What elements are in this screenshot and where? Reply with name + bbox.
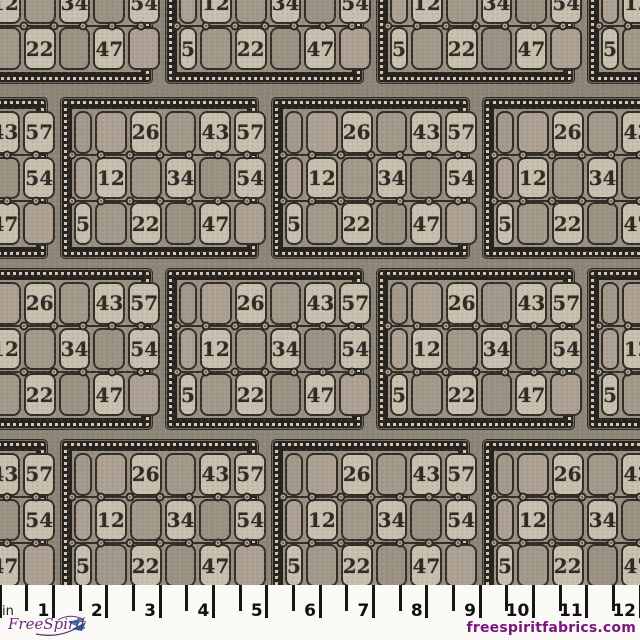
blank-cell	[0, 373, 21, 416]
number-cell: 5	[179, 27, 197, 70]
eyelet-icon	[107, 368, 116, 377]
number-cell: 57	[23, 111, 55, 154]
inch-number: 3	[130, 601, 156, 621]
blank-cell	[0, 499, 20, 542]
eyelet-icon	[68, 150, 77, 159]
blank-cell	[515, 328, 547, 371]
blank-cell	[496, 111, 514, 154]
blank-cell	[306, 111, 338, 154]
inch-number: 5	[237, 601, 263, 621]
eyelet-icon	[442, 368, 451, 377]
blank-cell	[235, 328, 267, 371]
number-cell: 57	[234, 453, 266, 496]
card-grid: 26435712345452247	[175, 278, 354, 420]
number-cell: 47	[515, 27, 547, 70]
eyelet-icon	[49, 321, 58, 330]
blank-cell	[552, 499, 584, 542]
divider-line	[496, 154, 640, 156]
lotto-card: 26435712345452247	[589, 0, 640, 82]
eyelet-icon	[490, 197, 499, 206]
blank-cell	[622, 282, 640, 325]
eyelet-icon	[424, 492, 433, 501]
eyelet-icon	[231, 368, 240, 377]
eyelet-icon	[213, 197, 222, 206]
number-cell: 54	[234, 157, 266, 200]
blank-cell	[128, 27, 160, 70]
number-cell: 57	[234, 111, 266, 154]
blank-cell	[285, 453, 303, 496]
eyelet-icon	[606, 539, 615, 548]
card-grid: 26435712345452247	[281, 107, 460, 249]
number-cell: 22	[235, 373, 267, 416]
eyelet-icon	[624, 368, 633, 377]
number-cell: 12	[95, 499, 127, 542]
eyelet-icon	[49, 22, 58, 31]
inch-tick	[105, 585, 108, 618]
number-cell: 47	[199, 202, 231, 245]
number-cell: 26	[130, 453, 162, 496]
eyelet-icon	[126, 197, 135, 206]
blank-cell	[199, 157, 231, 200]
eyelet-icon	[126, 492, 135, 501]
number-cell: 12	[0, 0, 21, 24]
eyelet-icon	[529, 321, 538, 330]
number-cell: 54	[339, 328, 371, 371]
number-cell: 5	[601, 27, 619, 70]
blank-cell	[411, 282, 443, 325]
blank-cell	[376, 453, 408, 496]
card-grid: 26435712345452247	[597, 278, 640, 420]
eyelet-icon	[68, 539, 77, 548]
eyelet-icon	[366, 150, 375, 159]
number-cell: 34	[587, 499, 619, 542]
eyelet-icon	[107, 321, 116, 330]
eyelet-icon	[20, 368, 29, 377]
eyelet-icon	[413, 368, 422, 377]
blank-cell	[481, 373, 513, 416]
eyelet-icon	[231, 22, 240, 31]
eyelet-icon	[318, 321, 327, 330]
number-cell: 12	[306, 157, 338, 200]
number-cell: 12	[622, 0, 640, 24]
blank-cell	[199, 499, 231, 542]
eyelet-icon	[279, 539, 288, 548]
lotto-card: 26435712345452247	[167, 270, 362, 428]
blank-cell	[24, 0, 56, 24]
divider-line	[601, 25, 640, 27]
blank-cell	[234, 202, 266, 245]
number-cell: 34	[270, 328, 302, 371]
inch-tick	[372, 585, 375, 618]
eyelet-icon	[529, 368, 538, 377]
blank-cell	[0, 282, 21, 325]
blank-cell	[165, 544, 197, 585]
number-cell: 47	[410, 544, 442, 585]
eyelet-icon	[635, 150, 640, 159]
eyelet-icon	[243, 150, 252, 159]
number-cell: 54	[445, 157, 477, 200]
number-cell: 5	[285, 202, 303, 245]
eyelet-icon	[78, 321, 87, 330]
number-cell: 22	[235, 27, 267, 70]
number-cell: 26	[341, 111, 373, 154]
number-cell: 12	[0, 328, 21, 371]
number-cell: 34	[59, 328, 91, 371]
blank-cell	[165, 111, 197, 154]
eyelet-icon	[606, 150, 615, 159]
inch-tick	[0, 585, 2, 618]
blank-cell	[93, 0, 125, 24]
card-grid: 26435712345452247	[597, 0, 640, 74]
eyelet-icon	[318, 22, 327, 31]
blank-cell	[23, 202, 55, 245]
blank-cell	[517, 453, 549, 496]
blank-cell	[74, 499, 92, 542]
number-cell: 22	[552, 544, 584, 585]
eyelet-icon	[559, 22, 568, 31]
eyelet-icon	[519, 492, 528, 501]
blank-cell	[339, 27, 371, 70]
eyelet-icon	[424, 197, 433, 206]
blank-cell	[200, 282, 232, 325]
eyelet-icon	[213, 539, 222, 548]
inch-number: 2	[77, 601, 103, 621]
lotto-card: 26435712345452247	[484, 441, 640, 585]
number-cell: 5	[496, 202, 514, 245]
eyelet-icon	[155, 150, 164, 159]
number-cell: 12	[306, 499, 338, 542]
eyelet-icon	[384, 22, 393, 31]
eyelet-icon	[595, 321, 604, 330]
blank-cell	[235, 0, 267, 24]
card-grid: 26435712345452247	[492, 107, 640, 249]
number-cell: 47	[621, 544, 640, 585]
number-cell: 5	[179, 373, 197, 416]
eyelet-icon	[635, 492, 640, 501]
inch-ruler: in FreeSpirit freespiritfabrics.com 1234…	[0, 585, 640, 640]
eyelet-icon	[78, 368, 87, 377]
eyelet-icon	[337, 492, 346, 501]
eyelet-icon	[348, 22, 357, 31]
blank-cell	[23, 544, 55, 585]
blank-cell	[339, 373, 371, 416]
blank-cell	[285, 499, 303, 542]
eyelet-icon	[606, 197, 615, 206]
blank-cell	[481, 282, 513, 325]
number-cell: 22	[24, 373, 56, 416]
lotto-card: 26435712345452247	[0, 99, 46, 257]
eyelet-icon	[548, 492, 557, 501]
blank-cell	[74, 453, 92, 496]
card-grid: 26435712345452247	[175, 0, 354, 74]
eyelet-icon	[97, 492, 106, 501]
inch-number: 10	[503, 601, 529, 621]
eyelet-icon	[20, 22, 29, 31]
eyelet-icon	[213, 150, 222, 159]
eyelet-icon	[137, 368, 146, 377]
inch-number: 9	[450, 601, 476, 621]
blank-cell	[285, 157, 303, 200]
number-cell: 34	[481, 0, 513, 24]
blank-cell	[179, 328, 197, 371]
eyelet-icon	[490, 492, 499, 501]
lotto-card: 26435712345452247	[378, 270, 573, 428]
eyelet-icon	[126, 150, 135, 159]
eyelet-icon	[471, 321, 480, 330]
eyelet-icon	[32, 492, 41, 501]
lotto-card: 26435712345452247	[273, 99, 468, 257]
eyelet-icon	[308, 150, 317, 159]
number-cell: 54	[445, 499, 477, 542]
eyelet-icon	[519, 197, 528, 206]
number-cell: 43	[93, 282, 125, 325]
inch-number: 12	[610, 601, 636, 621]
lotto-card: 26435712345452247	[0, 441, 46, 585]
blank-cell	[517, 544, 549, 585]
eyelet-icon	[471, 368, 480, 377]
card-grid: 26435712345452247	[0, 107, 38, 249]
lotto-card: 26435712345452247	[0, 0, 151, 82]
number-cell: 5	[74, 202, 92, 245]
eyelet-icon	[454, 150, 463, 159]
eyelet-icon	[126, 539, 135, 548]
blank-cell	[601, 0, 619, 24]
number-cell: 12	[622, 328, 640, 371]
eyelet-icon	[243, 197, 252, 206]
number-cell: 12	[95, 157, 127, 200]
blank-cell	[446, 328, 478, 371]
eyelet-icon	[184, 492, 193, 501]
number-cell: 47	[304, 373, 336, 416]
number-cell: 47	[199, 544, 231, 585]
number-cell: 34	[376, 499, 408, 542]
eyelet-icon	[606, 492, 615, 501]
eyelet-icon	[624, 321, 633, 330]
blank-cell	[306, 453, 338, 496]
number-cell: 54	[23, 499, 55, 542]
blank-cell	[95, 453, 127, 496]
eyelet-icon	[68, 197, 77, 206]
blank-cell	[95, 202, 127, 245]
eyelet-icon	[395, 492, 404, 501]
blank-cell	[445, 202, 477, 245]
blank-cell	[390, 282, 408, 325]
lotto-card: 26435712345452247	[273, 441, 468, 585]
inch-tick	[585, 585, 588, 618]
number-cell: 54	[234, 499, 266, 542]
number-cell: 47	[621, 202, 640, 245]
blank-cell	[270, 27, 302, 70]
blank-cell	[515, 0, 547, 24]
number-cell: 34	[270, 0, 302, 24]
blank-cell	[165, 202, 197, 245]
eyelet-icon	[395, 150, 404, 159]
eyelet-icon	[155, 539, 164, 548]
eyelet-icon	[308, 492, 317, 501]
blank-cell	[165, 453, 197, 496]
lotto-card: 26435712345452247	[378, 0, 573, 82]
eyelet-icon	[137, 321, 146, 330]
number-cell: 26	[235, 282, 267, 325]
lotto-card: 26435712345452247	[0, 270, 151, 428]
eyelet-icon	[2, 150, 11, 159]
eyelet-icon	[155, 492, 164, 501]
eyelet-icon	[395, 539, 404, 548]
eyelet-icon	[97, 539, 106, 548]
eyelet-icon	[471, 22, 480, 31]
number-cell: 22	[552, 202, 584, 245]
fabric-product-photo: 2643571234545224726435712345452247264357…	[0, 0, 640, 640]
blank-cell	[552, 157, 584, 200]
eyelet-icon	[2, 539, 11, 548]
divider-line	[601, 371, 640, 373]
number-cell: 5	[496, 544, 514, 585]
number-cell: 43	[0, 111, 20, 154]
blank-cell	[550, 373, 582, 416]
eyelet-icon	[173, 22, 182, 31]
number-cell: 43	[410, 111, 442, 154]
eyelet-icon	[490, 539, 499, 548]
eyelet-icon	[490, 150, 499, 159]
number-cell: 43	[199, 111, 231, 154]
eyelet-icon	[595, 368, 604, 377]
card-grid: 26435712345452247	[70, 107, 249, 249]
blank-cell	[390, 0, 408, 24]
blank-cell	[496, 453, 514, 496]
card-grid: 26435712345452247	[492, 449, 640, 585]
blank-cell	[341, 157, 373, 200]
eyelet-icon	[289, 22, 298, 31]
number-cell: 26	[24, 282, 56, 325]
eyelet-icon	[318, 368, 327, 377]
eyelet-icon	[260, 368, 269, 377]
eyelet-icon	[366, 539, 375, 548]
number-cell: 26	[552, 111, 584, 154]
eyelet-icon	[107, 22, 116, 31]
number-cell: 57	[445, 453, 477, 496]
number-cell: 43	[515, 282, 547, 325]
eyelet-icon	[184, 197, 193, 206]
eyelet-icon	[424, 150, 433, 159]
blank-cell	[74, 157, 92, 200]
blank-cell	[0, 157, 20, 200]
eyelet-icon	[395, 197, 404, 206]
eyelet-icon	[173, 321, 182, 330]
eyelet-icon	[2, 197, 11, 206]
eyelet-icon	[548, 539, 557, 548]
eyelet-icon	[384, 368, 393, 377]
number-cell: 5	[285, 544, 303, 585]
blank-cell	[95, 544, 127, 585]
inch-number: 1	[23, 601, 49, 621]
eyelet-icon	[279, 492, 288, 501]
eyelet-icon	[32, 197, 41, 206]
eyelet-icon	[2, 492, 11, 501]
inch-tick	[159, 585, 162, 618]
eyelet-icon	[137, 22, 146, 31]
blank-cell	[93, 328, 125, 371]
eyelet-icon	[308, 539, 317, 548]
eyelet-icon	[243, 539, 252, 548]
eyelet-icon	[442, 321, 451, 330]
number-cell: 54	[550, 0, 582, 24]
blank-cell	[601, 328, 619, 371]
blank-cell	[304, 0, 336, 24]
blank-cell	[587, 544, 619, 585]
number-cell: 43	[199, 453, 231, 496]
blank-cell	[130, 499, 162, 542]
eyelet-icon	[202, 368, 211, 377]
blank-cell	[306, 544, 338, 585]
card-grid: 26435712345452247	[386, 278, 565, 420]
number-cell: 47	[0, 202, 20, 245]
blank-cell	[95, 111, 127, 154]
number-cell: 22	[341, 202, 373, 245]
number-cell: 57	[128, 282, 160, 325]
eyelet-icon	[49, 368, 58, 377]
inch-number: 8	[397, 601, 423, 621]
number-cell: 12	[411, 328, 443, 371]
eyelet-icon	[68, 492, 77, 501]
eyelet-icon	[529, 22, 538, 31]
blank-cell	[128, 373, 160, 416]
blank-cell	[496, 499, 514, 542]
blank-cell	[59, 282, 91, 325]
divider-line	[496, 542, 640, 544]
blank-cell	[74, 111, 92, 154]
number-cell: 34	[59, 0, 91, 24]
eyelet-icon	[348, 368, 357, 377]
divider-line	[496, 200, 640, 202]
card-grid: 26435712345452247	[0, 278, 143, 420]
card-grid: 26435712345452247	[281, 449, 460, 585]
eyelet-icon	[442, 22, 451, 31]
eyelet-icon	[173, 368, 182, 377]
eyelet-icon	[202, 321, 211, 330]
blank-cell	[130, 157, 162, 200]
eyelet-icon	[97, 197, 106, 206]
eyelet-icon	[500, 22, 509, 31]
number-cell: 57	[550, 282, 582, 325]
number-cell: 34	[481, 328, 513, 371]
eyelet-icon	[635, 197, 640, 206]
eyelet-icon	[454, 539, 463, 548]
eyelet-icon	[32, 539, 41, 548]
inch-number: 4	[183, 601, 209, 621]
number-cell: 47	[0, 544, 20, 585]
lotto-card: 26435712345452247	[167, 0, 362, 82]
number-cell: 47	[410, 202, 442, 245]
number-cell: 34	[165, 157, 197, 200]
eyelet-icon	[348, 321, 357, 330]
blank-cell	[304, 328, 336, 371]
number-cell: 12	[517, 499, 549, 542]
eyelet-icon	[155, 197, 164, 206]
divider-line	[496, 496, 640, 498]
blank-cell	[410, 157, 442, 200]
number-cell: 34	[376, 157, 408, 200]
eyelet-icon	[289, 321, 298, 330]
eyelet-icon	[184, 150, 193, 159]
blank-cell	[200, 373, 232, 416]
lotto-card: 26435712345452247	[589, 270, 640, 428]
number-cell: 26	[552, 453, 584, 496]
blank-cell	[179, 0, 197, 24]
blank-cell	[601, 282, 619, 325]
eyelet-icon	[454, 197, 463, 206]
number-cell: 5	[601, 373, 619, 416]
number-cell: 57	[23, 453, 55, 496]
